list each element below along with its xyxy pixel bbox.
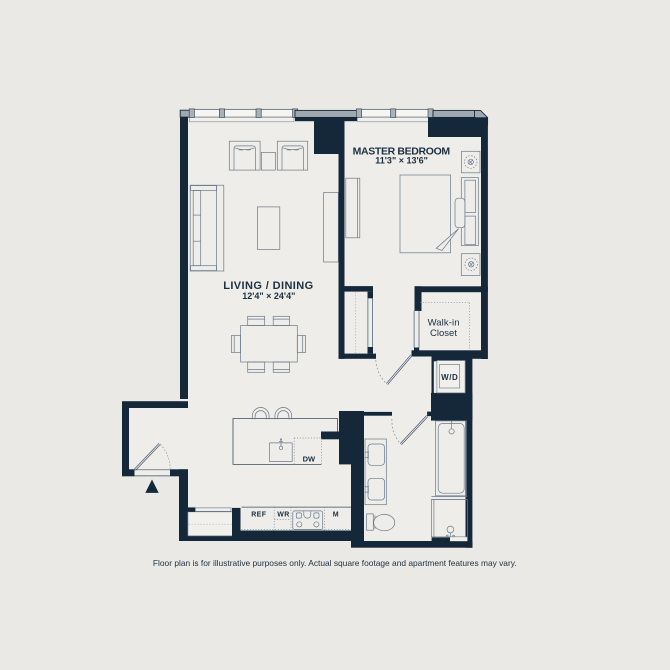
svg-text:M: M (333, 511, 339, 518)
svg-text:REF: REF (251, 511, 267, 518)
svg-text:Floor plan is for illustrative: Floor plan is for illustrative purposes … (153, 558, 517, 568)
svg-text:11'3" × 13'6": 11'3" × 13'6" (375, 156, 428, 166)
svg-text:Closet: Closet (430, 328, 457, 339)
svg-text:12'4" × 24'4": 12'4" × 24'4" (242, 291, 295, 301)
svg-text:W/D: W/D (441, 373, 458, 382)
svg-text:WR: WR (277, 511, 289, 518)
svg-text:Walk-in: Walk-in (428, 317, 460, 328)
svg-text:DW: DW (303, 454, 316, 463)
